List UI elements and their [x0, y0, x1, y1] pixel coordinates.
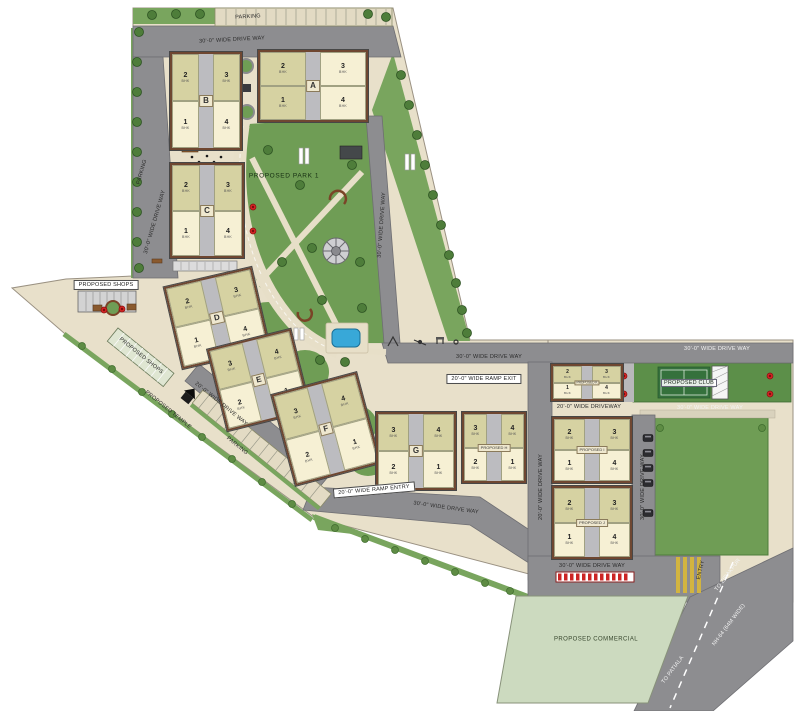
planter — [106, 301, 120, 315]
road-top — [133, 26, 401, 57]
fountain-icon — [323, 238, 349, 264]
parking-strip-c — [173, 261, 237, 271]
club-house — [712, 366, 728, 399]
east-lawn — [655, 418, 768, 555]
road-mid — [382, 343, 793, 363]
site-plan: 2BHK3BHK1BHK4BHKB2BHK3BHK1BHK4BHKA2BHK3B… — [0, 0, 795, 711]
swimming-pool — [326, 323, 368, 353]
site-plan-drawing — [0, 0, 795, 711]
tennis-court — [658, 367, 710, 398]
road-west-vertical — [528, 362, 552, 580]
shade-structure — [340, 146, 362, 159]
red-curb-strip — [556, 572, 634, 582]
pool-icon — [332, 329, 360, 347]
